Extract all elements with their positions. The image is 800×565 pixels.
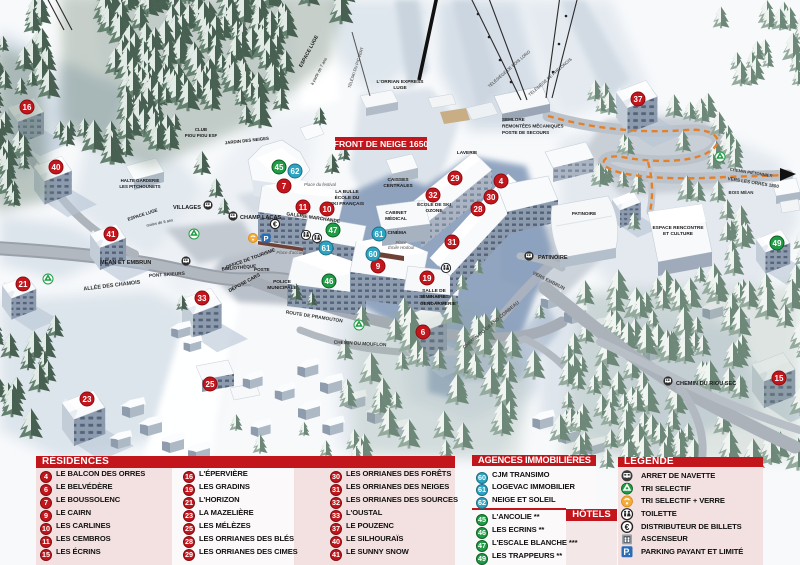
svg-text:10: 10 — [323, 205, 332, 214]
svg-text:47: 47 — [329, 226, 338, 235]
svg-text:Place du festival: Place du festival — [304, 182, 337, 187]
svg-text:60: 60 — [369, 250, 378, 259]
svg-text:SEMLORE: SEMLORE — [502, 117, 525, 122]
svg-text:SALLE DE: SALLE DE — [422, 288, 447, 294]
svg-text:MEAN ET EMBRUN: MEAN ET EMBRUN — [100, 260, 151, 266]
svg-text:CAISSES: CAISSES — [387, 177, 409, 183]
svg-text:ET CULTURE: ET CULTURE — [663, 231, 694, 237]
svg-text:HALTE GARDERIE: HALTE GARDERIE — [121, 178, 160, 183]
svg-text:49: 49 — [773, 239, 782, 248]
svg-text:ESPACE RENCONTRE: ESPACE RENCONTRE — [652, 225, 704, 231]
svg-text:62: 62 — [291, 167, 300, 176]
svg-text:L'ORRIAN EXPRESS: L'ORRIAN EXPRESS — [377, 79, 425, 85]
svg-text:LA BULLE: LA BULLE — [335, 189, 359, 195]
svg-text:30: 30 — [487, 193, 496, 202]
svg-text:28: 28 — [474, 205, 483, 214]
svg-text:16: 16 — [23, 103, 32, 112]
svg-text:CHEMIN DU RIOU SEC: CHEMIN DU RIOU SEC — [676, 381, 736, 387]
svg-text:CABINET: CABINET — [385, 210, 406, 216]
svg-text:61: 61 — [322, 244, 331, 253]
svg-text:LAVERIE: LAVERIE — [457, 150, 478, 156]
svg-text:POSTE: POSTE — [254, 267, 270, 272]
svg-text:POSTE DE SECOURS: POSTE DE SECOURS — [502, 130, 549, 135]
svg-text:15: 15 — [775, 374, 784, 383]
svg-text:REMONTÉES MÉCANIQUES: REMONTÉES MÉCANIQUES — [502, 122, 564, 129]
svg-text:LUGE: LUGE — [393, 85, 407, 91]
svg-text:33: 33 — [198, 294, 207, 303]
svg-text:11: 11 — [299, 203, 308, 212]
svg-text:25: 25 — [206, 380, 215, 389]
svg-text:PATINOIRE: PATINOIRE — [572, 211, 596, 216]
svg-text:MUNICIPALE: MUNICIPALE — [267, 285, 297, 291]
svg-text:FRONT DE NEIGE 1650: FRONT DE NEIGE 1650 — [334, 139, 429, 149]
svg-text:BOIS MÉAN: BOIS MÉAN — [729, 190, 754, 195]
svg-text:4: 4 — [499, 177, 504, 186]
svg-text:45: 45 — [275, 163, 284, 172]
svg-text:41: 41 — [107, 230, 116, 239]
svg-text:9: 9 — [376, 262, 381, 271]
svg-text:POLICE: POLICE — [273, 279, 292, 285]
svg-text:SKI FRANÇAIS: SKI FRANÇAIS — [330, 201, 365, 207]
svg-text:PIOU PIOU ESF: PIOU PIOU ESF — [185, 133, 218, 138]
svg-text:OZONE: OZONE — [425, 208, 443, 214]
svg-text:CENTRALES: CENTRALES — [383, 183, 413, 189]
svg-text:32: 32 — [429, 191, 438, 200]
svg-text:6: 6 — [421, 328, 426, 337]
svg-text:40: 40 — [52, 163, 61, 172]
svg-text:7: 7 — [282, 182, 287, 191]
svg-text:37: 37 — [634, 95, 643, 104]
svg-text:Place d'accueil: Place d'accueil — [276, 250, 306, 255]
svg-text:31: 31 — [448, 238, 457, 247]
svg-text:46: 46 — [325, 277, 334, 286]
svg-text:CLUB: CLUB — [195, 127, 207, 132]
svg-text:VILLAGES: VILLAGES — [173, 205, 201, 211]
svg-text:LES PITCHOUNETS: LES PITCHOUNETS — [119, 184, 160, 189]
svg-text:21: 21 — [19, 280, 28, 289]
svg-text:GENDARMERIE: GENDARMERIE — [420, 301, 457, 307]
svg-text:PATINOIRE: PATINOIRE — [538, 255, 568, 261]
svg-text:19: 19 — [423, 274, 432, 283]
svg-text:Émile Hodoul: Émile Hodoul — [388, 245, 415, 250]
svg-text:29: 29 — [451, 174, 460, 183]
svg-text:23: 23 — [83, 395, 92, 404]
svg-text:61: 61 — [375, 230, 384, 239]
